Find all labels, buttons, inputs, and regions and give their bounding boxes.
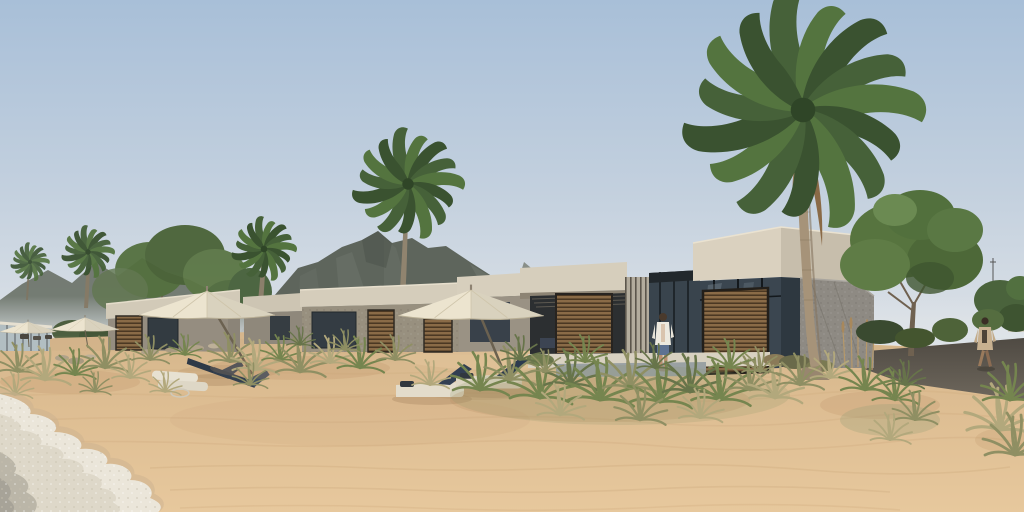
rendering-canvas: 3D rendering of a beachfront resort: a r… [0, 0, 1024, 512]
villa-b-setback [243, 293, 302, 344]
person-head [659, 313, 667, 321]
resort-beach-rendering: 3D rendering of a beachfront resort: a r… [0, 0, 1024, 512]
